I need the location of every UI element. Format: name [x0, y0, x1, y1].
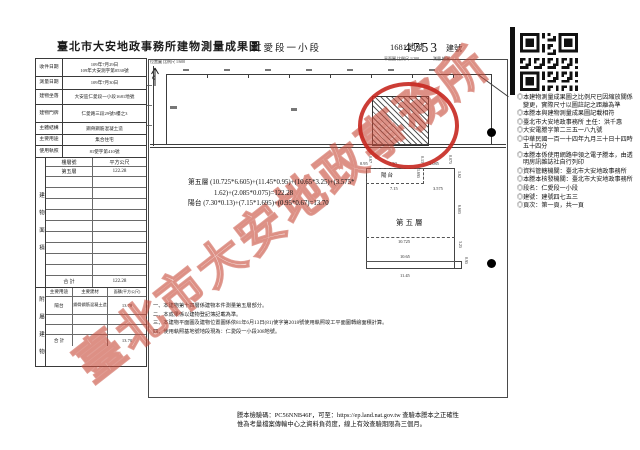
area-formula: 第五層 (10.725*6.605)+(11.45*0.95)+(10.65*3…: [188, 178, 423, 210]
note-line: ◎大安電謄字第二三五一八九號: [517, 128, 638, 136]
tick: [289, 74, 290, 78]
dim-label: 0.95: [360, 161, 368, 166]
building-number-suffix: 建號: [446, 43, 462, 54]
tick: [147, 105, 152, 106]
annex-empty-row: [46, 315, 146, 325]
annex-total-row: 合 計 13.70: [46, 335, 146, 346]
area-total-row: 合 計 122.28: [46, 276, 146, 287]
dim-label: 3.575: [433, 186, 443, 191]
verification-validity-line: 惟為考量檔案傳輸中心之資料負荷度，線上有效查驗期限為三個月。: [237, 420, 515, 429]
floor-plan: 0.95 0.67 7.30 0.13 2.085 0.075 陽台 1.695…: [360, 155, 478, 287]
area-empty-row: [46, 199, 146, 210]
verification-footer: 謄本檢驗碼：PC56NNB46F，可至：https://ep.land.nat.…: [237, 411, 515, 430]
strip-left-line: [166, 74, 167, 145]
dim-mark: [183, 69, 189, 71]
dim-mark: [291, 108, 297, 111]
footnote-line: 三、本建物平面圖及建物位置圖係依81年6月13日(81)使字第2018號使用執照…: [153, 319, 505, 328]
annex-empty-row: [46, 325, 146, 335]
table-row: 使用執照 81使字第410號: [36, 146, 146, 158]
area-empty-row: [46, 243, 146, 254]
page-title: 臺北市大安地政事務所建物測量成果圖: [57, 38, 261, 54]
inner-dash-line: [366, 237, 455, 238]
area-empty-row: [46, 177, 146, 188]
footnote-line: 四、使用執照基地號地段現為：仁愛段一小段308地號。: [153, 328, 505, 337]
tick: [330, 74, 331, 78]
dim-label: 0.67: [368, 156, 373, 163]
note-line: ◎頁次：第一頁，共一頁: [517, 203, 638, 211]
area-empty-row: [46, 232, 146, 243]
note-line: ◎本建物測量成果圖之比例尺已因縮放關係變更，實際尺寸以圖註記之距離為準: [517, 95, 638, 110]
note-line: ◎資料管轄機關：臺北市大安地政事務所: [517, 169, 638, 177]
note-line: ◎臺北市大安地政事務所 主任：洪千惠: [517, 120, 638, 128]
area-empty-row: [46, 265, 146, 276]
table-row: 建物門牌 仁愛路三段29號5樓之3: [36, 105, 146, 123]
dim-mark: [347, 69, 353, 71]
building-area-section: 建物面積 樓層號 平方公尺 第五層 122.28: [36, 158, 146, 288]
table-row: 主體結構 鋼骨鋼筋混凝土造: [36, 123, 146, 135]
inner-solid-line: [366, 261, 455, 262]
dim-label: 11.45: [400, 273, 410, 278]
table-row: 主要用途 集合住宅: [36, 135, 146, 146]
annex-row: 陽台 鋼骨鋼筋混凝土造 13.70: [46, 297, 146, 315]
table-row: 收件日期 109年7月29日109年大安測字第0530號: [36, 59, 146, 77]
area-header-row: 樓層號 平方公尺: [46, 158, 146, 167]
floor-notch: [455, 261, 462, 269]
footnote-line: 一、本建物第十四層係建物本件測量第五層部分。: [153, 302, 505, 311]
dim-label: 6.605: [457, 205, 462, 214]
tick: [412, 74, 413, 78]
binding-bar: [510, 27, 515, 95]
dim-label: 1.695: [416, 169, 421, 178]
annex-side-label: 附屬建物: [36, 288, 46, 366]
tick: [453, 74, 454, 78]
note-line: ◎本謄本核發機關：臺北市大安地政事務所: [517, 177, 638, 185]
note-line: ◎中華民國一百一十四年九月三十日十四時五十四分: [517, 137, 638, 152]
strip-bottom-line-2: [150, 147, 506, 148]
floor-label: 第五層: [396, 217, 425, 228]
dim-label: 10.65: [400, 254, 410, 259]
tick: [248, 74, 249, 78]
area-empty-row: [46, 254, 146, 265]
tick: [147, 85, 152, 86]
footnotes: 一、本建物第十四層係建物本件測量第五層部分。 二、本成果係以建物登記簿記載為準。…: [153, 302, 505, 337]
footnote-line: 二、本成果係以建物登記簿記載為準。: [153, 311, 505, 320]
table-row: 建物坐落 大安區仁愛段一小段1681地號: [36, 90, 146, 105]
note-line: ◎本謄本與建物測量成果圖記載相符: [517, 111, 638, 119]
table-row: 測量日期 109年7月30日: [36, 77, 146, 90]
land-section-label: 仁愛段一小段: [252, 40, 321, 54]
dim-mark: [388, 69, 394, 71]
note-line: ◎段名：仁愛段一小段: [517, 186, 638, 194]
tick: [371, 74, 372, 78]
strip-top-line: [166, 74, 492, 75]
dim-label: 0.95: [464, 257, 469, 264]
area-side-label: 建物面積: [36, 158, 46, 287]
dim-mark: [170, 106, 177, 109]
area-empty-row: [46, 221, 146, 232]
note-line: ◎建號：建號四七五三: [517, 195, 638, 203]
area-empty-row: [46, 210, 146, 221]
dim-label: 0.075: [448, 155, 453, 164]
annex-header-row: 主要用途 主要建材 面積(平方公尺): [46, 288, 146, 297]
dim-mark: [306, 69, 312, 71]
dim-label: 3.25: [458, 241, 463, 248]
area-empty-row: [46, 188, 146, 199]
annex-building-section: 附屬建物 主要用途 主要建材 面積(平方公尺) 陽台 鋼骨鋼筋混凝土造 13.7…: [36, 288, 146, 366]
building-info-table: 收件日期 109年7月29日109年大安測字第0530號 測量日期 109年7月…: [35, 58, 147, 367]
dim-mark: [429, 69, 435, 71]
transcript-notes: ◎本建物測量成果圖之比例尺已因縮放關係變更，實際尺寸以圖註記之距離為準 ◎本謄本…: [517, 95, 638, 212]
tick: [207, 74, 208, 78]
building-number: 4753: [404, 40, 439, 56]
verification-code-line: 謄本檢驗碼：PC56NNB46F，可至：https://ep.land.nat.…: [237, 411, 515, 420]
qr-code: [520, 33, 578, 91]
tick: [147, 125, 152, 126]
area-row: 第五層 122.28: [46, 167, 146, 177]
strip-axis-line: [153, 66, 154, 146]
dim-label: 10.725: [398, 239, 410, 244]
dim-mark: [224, 69, 230, 71]
note-line: ◎本謄本係使用網路申領之電子謄本，由透明房訊雜誌社自行列印: [517, 153, 638, 168]
punch-hole-dot: [487, 259, 496, 268]
punch-hole-dot: [487, 128, 496, 137]
red-circle-annotation: [358, 82, 459, 169]
dim-mark: [265, 69, 271, 71]
dim-label: 1.62: [457, 171, 462, 178]
scanned-survey-document: 臺北市大安地政事務所 臺北市大安地政事務所建物測量成果圖 仁愛段一小段 1681…: [0, 0, 640, 450]
